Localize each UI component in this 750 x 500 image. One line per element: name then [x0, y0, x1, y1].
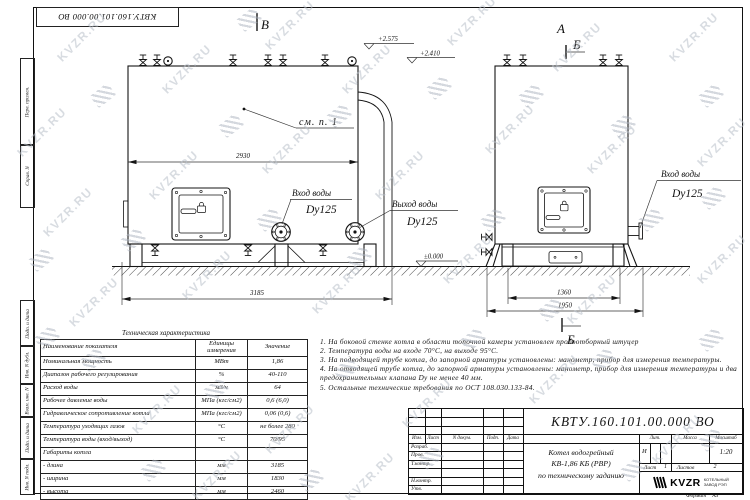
tb-lit-value: И [639, 448, 650, 455]
spec-cell: % [196, 369, 248, 382]
spec-cell: м3/ч [196, 382, 248, 395]
notes-list: 1. На боковой стенке котла в области топ… [320, 337, 744, 392]
spec-cell [248, 447, 308, 460]
dim-2930: 2930 [236, 152, 251, 160]
spec-cell: МПа (кгс/см2) [196, 408, 248, 421]
spec-cell: Рабочее давление воды [41, 395, 196, 408]
elevation-mark-ground [416, 261, 458, 267]
spec-cell: Номинальная мощность [41, 356, 196, 369]
margin-box-podp-data-1: Подп. и дата [20, 300, 35, 347]
tb-lit-header: Лит. [639, 436, 671, 441]
spring-icon [653, 476, 667, 489]
product-name-line: КВ-1,86 КБ (РВР) [551, 458, 610, 469]
margin-box-sprav-n: Справ. N [20, 144, 35, 208]
spec-cell: °С [196, 421, 248, 434]
note-item: 2. Температура воды на входе 70°С, на вы… [320, 346, 744, 355]
tb-scale-header: Масштаб [709, 436, 743, 441]
outlet-label-front: Выход воды [392, 199, 437, 209]
tb-header-ndokum: N докум. [441, 436, 483, 441]
inlet-dn-side: Dy125 [671, 188, 703, 200]
spec-row: - высотамм2460 [41, 486, 308, 499]
spec-row: Габариты котла [41, 447, 308, 460]
spec-cell: 1,86 [248, 356, 308, 369]
callout-text: см. п. 1 [299, 117, 338, 128]
spec-cell: МПа (кгс/см2) [196, 395, 248, 408]
callout-dot [243, 108, 246, 111]
company-name: KVZR [670, 477, 701, 489]
spec-cell: °С [196, 434, 248, 447]
spec-row: Номинальная мощностьМВт1,86 [41, 356, 308, 369]
tb-sheets-label: Листов [672, 465, 699, 471]
spec-row: - длинамм3185 [41, 460, 308, 473]
spec-table-title: Техническая характеристика [40, 329, 292, 337]
spec-row: - ширинамм1830 [41, 473, 308, 486]
spec-cell: 64 [248, 382, 308, 395]
margin-label: Перв. примен. [25, 87, 31, 118]
spec-cell: Габариты котла [41, 447, 196, 460]
doc-number-rotated: КВТУ.160.101.00.000 ВО [36, 7, 179, 27]
ground-line [112, 267, 690, 276]
spec-cell: мм [196, 460, 248, 473]
spec-table-block: Техническая характеристика Наименование … [40, 329, 292, 500]
tb-sheet-value: 1 [660, 464, 671, 470]
spec-cell: мм [196, 473, 248, 486]
spec-cell: 70/95 [248, 434, 308, 447]
tb-row-prov: Пров. [411, 452, 441, 458]
spec-header-units: Единицы измерения [196, 340, 248, 357]
spec-row: Рабочее давление водыМПа (кгс/см2)0,6 (6… [41, 395, 308, 408]
note-item: 4. На отводящей трубе котла, до запорной… [320, 364, 744, 382]
doc-number: КВТУ.160.101.00.000 ВО [523, 409, 743, 434]
tb-row-razrab: Разраб. [411, 444, 441, 450]
tb-mass-header: Масса [671, 436, 709, 441]
margin-label: Подп. и дата [25, 423, 31, 453]
tb-row-tkontr: Т.контр. [411, 461, 441, 467]
tb-sheet-label: Лист [640, 465, 660, 471]
spec-cell: Температура уходящих газов [41, 421, 196, 434]
elevation-ground: ±0.000 [424, 254, 444, 261]
spec-cell: - ширина [41, 473, 196, 486]
spec-cell: 0,06 (0,6) [248, 408, 308, 421]
spec-cell: МВт [196, 356, 248, 369]
spec-row: Расход водым3/ч64 [41, 382, 308, 395]
view-label-v: В [261, 17, 269, 32]
tb-header-data: Дата [503, 436, 523, 441]
spec-header-name: Наименование показателя [41, 340, 196, 357]
technical-notes: 1. На боковой стенке котла в области топ… [320, 337, 744, 392]
margin-box-vzam-inv: Взам. инв. N [20, 383, 35, 418]
elevation-top: +2.575 [378, 36, 398, 43]
view-label-a: А [556, 21, 565, 36]
spec-cell: 2460 [248, 486, 308, 499]
tb-header-podp: Подп. [483, 436, 503, 441]
spec-cell: 40-110 [248, 369, 308, 382]
elevation-mark-top [364, 44, 414, 50]
inlet-flange [272, 223, 291, 242]
spec-row: Температура воды (вход/выход)°С70/95 [41, 434, 308, 447]
spec-cell [196, 447, 248, 460]
section-label-b-top: Б [572, 37, 581, 52]
drawing-sheet: В А Б Б +2.575 +2.410 ±0.000 см. п. 1 29… [0, 0, 750, 500]
margin-box-perv-primen: Перв. примен. [20, 58, 35, 146]
flue-duct-arc [358, 92, 392, 122]
spec-row: Гидравлическое сопротивление котлаМПа (к… [41, 408, 308, 421]
product-name-line: Котел водогрейный [548, 447, 613, 458]
engineering-drawing: В А Б Б +2.575 +2.410 ±0.000 см. п. 1 29… [0, 0, 750, 348]
tb-scale-value: 1:20 [709, 448, 743, 456]
company-logo: KVZR КОТЕЛЬНЫЙ ЗАВОД РЭП [639, 471, 743, 494]
spec-table-body: Номинальная мощностьМВт1,86Диапазон рабо… [41, 356, 308, 499]
format-value: А3 [712, 493, 718, 499]
spec-row: Диапазон рабочего регулирования%40-110 [41, 369, 308, 382]
company-sub-line: ЗАВОД РЭП [704, 483, 729, 488]
margin-label: Инв. N подл. [25, 463, 31, 490]
spec-cell: - высота [41, 486, 196, 499]
spec-cell: Гидравлическое сопротивление котла [41, 408, 196, 421]
spec-cell: 3185 [248, 460, 308, 473]
inlet-label-front: Вход воды [292, 188, 331, 198]
inlet-dn-front: Dy125 [305, 204, 337, 216]
margin-box-inv-dubl: Инв. N дубл. [20, 345, 35, 385]
outlet-dn-front: Dy125 [406, 216, 438, 228]
format-label: Формат [686, 493, 706, 499]
tb-row-utv: Утв. [411, 486, 441, 492]
margin-label: Справ. N [25, 166, 31, 186]
margin-label: Инв. N дубл. [25, 352, 31, 379]
side-inlet-pipe [628, 227, 639, 236]
note-item: 3. На подводящей трубе котла, до запорно… [320, 355, 744, 364]
product-name-line: по техническому заданию [538, 470, 624, 481]
tb-header-list: Лист [425, 436, 441, 441]
tb-header-izm: Изм. [409, 436, 425, 441]
tb-sheets-value: 2 [706, 464, 724, 470]
margin-box-inv-podl: Инв. N подл. [20, 458, 35, 495]
spec-cell: Диапазон рабочего регулирования [41, 369, 196, 382]
doc-number-rotated-text: КВТУ.160.101.00.000 ВО [58, 12, 156, 22]
spec-header-value: Значение [248, 340, 308, 357]
margin-label: Взам. инв. N [25, 387, 31, 414]
spec-cell: Температура воды (вход/выход) [41, 434, 196, 447]
elevation-mark-mid [407, 58, 455, 64]
title-block: КВТУ.160.101.00.000 ВО Изм. Лист N докум… [408, 408, 744, 495]
margin-box-podp-data-2: Подп. и дата [20, 416, 35, 460]
spec-table: Наименование показателя Единицы измерени… [40, 339, 308, 500]
dim-1950: 1950 [558, 302, 573, 310]
note-item: 5. Остальные технические требования по О… [320, 383, 744, 392]
margin-label: Подп. и дата [25, 309, 31, 339]
spec-cell: Расход воды [41, 382, 196, 395]
spec-cell: не более 280 [248, 421, 308, 434]
note-item: 1. На боковой стенке котла в области топ… [320, 337, 744, 346]
format-note: ФорматА3 [686, 493, 724, 499]
dim-3185: 3185 [249, 289, 265, 297]
elevation-mid: +2.410 [420, 51, 440, 58]
spec-row: Температура уходящих газов°Сне более 280 [41, 421, 308, 434]
spec-cell: 1830 [248, 473, 308, 486]
spec-cell: мм [196, 486, 248, 499]
inlet-label-side: Вход воды [661, 169, 700, 179]
product-name: Котел водогрейный КВ-1,86 КБ (РВР) по те… [523, 434, 639, 494]
boiler-side-view [482, 55, 643, 267]
tb-row-nkontr: Н.контр. [411, 478, 441, 484]
watermark-text: KVZR.RU [342, 449, 397, 500]
spec-cell: - длина [41, 460, 196, 473]
dim-1360: 1360 [557, 289, 572, 297]
spec-header-row: Наименование показателя Единицы измерени… [41, 340, 308, 357]
outlet-flange [346, 223, 365, 242]
spec-cell: 0,6 (6,0) [248, 395, 308, 408]
